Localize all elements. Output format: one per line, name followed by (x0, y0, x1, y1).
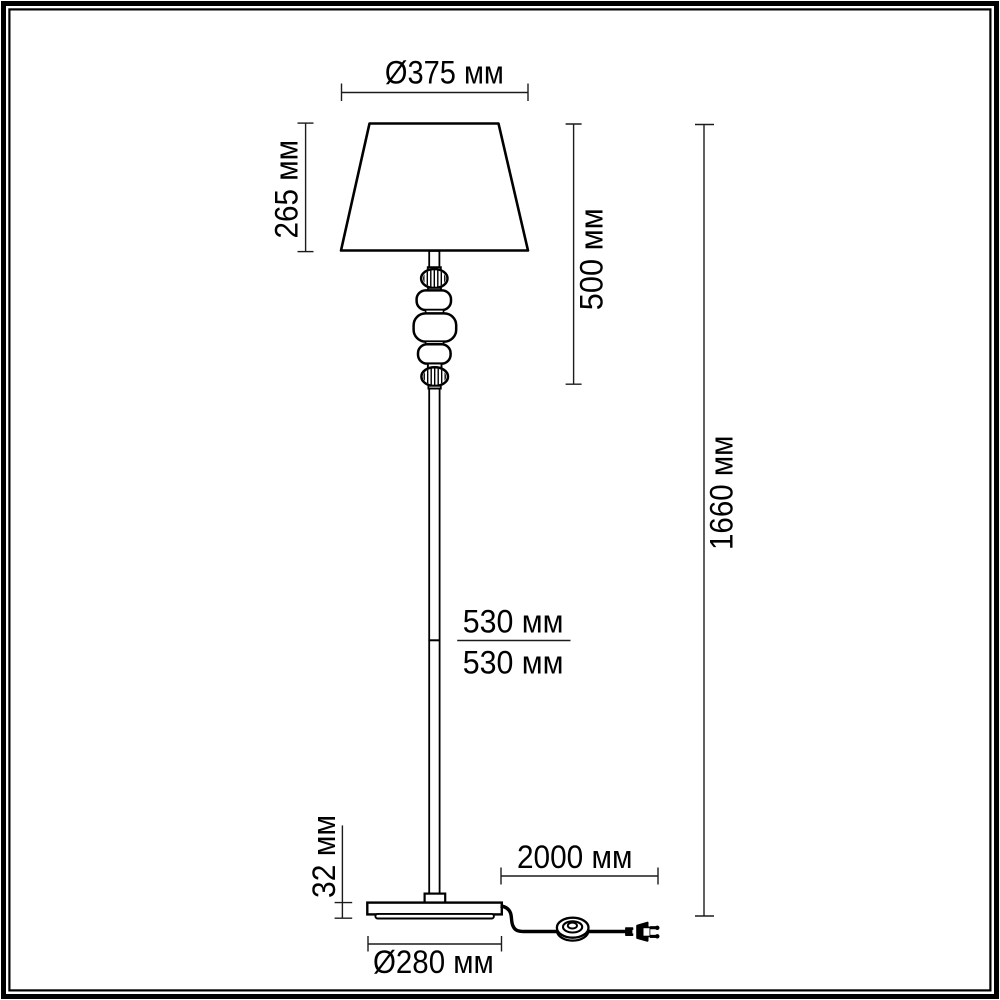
svg-text:530 мм: 530 мм (463, 645, 564, 681)
svg-text:265 мм: 265 мм (268, 140, 304, 239)
svg-text:32 мм: 32 мм (306, 815, 342, 898)
svg-text:500 мм: 500 мм (574, 208, 610, 310)
svg-text:Ø375 мм: Ø375 мм (385, 55, 504, 91)
svg-text:530 мм: 530 мм (463, 603, 564, 639)
svg-text:1660 мм: 1660 мм (704, 436, 740, 550)
svg-text:Ø280 мм: Ø280 мм (373, 944, 494, 980)
svg-text:2000 мм: 2000 мм (517, 839, 633, 875)
